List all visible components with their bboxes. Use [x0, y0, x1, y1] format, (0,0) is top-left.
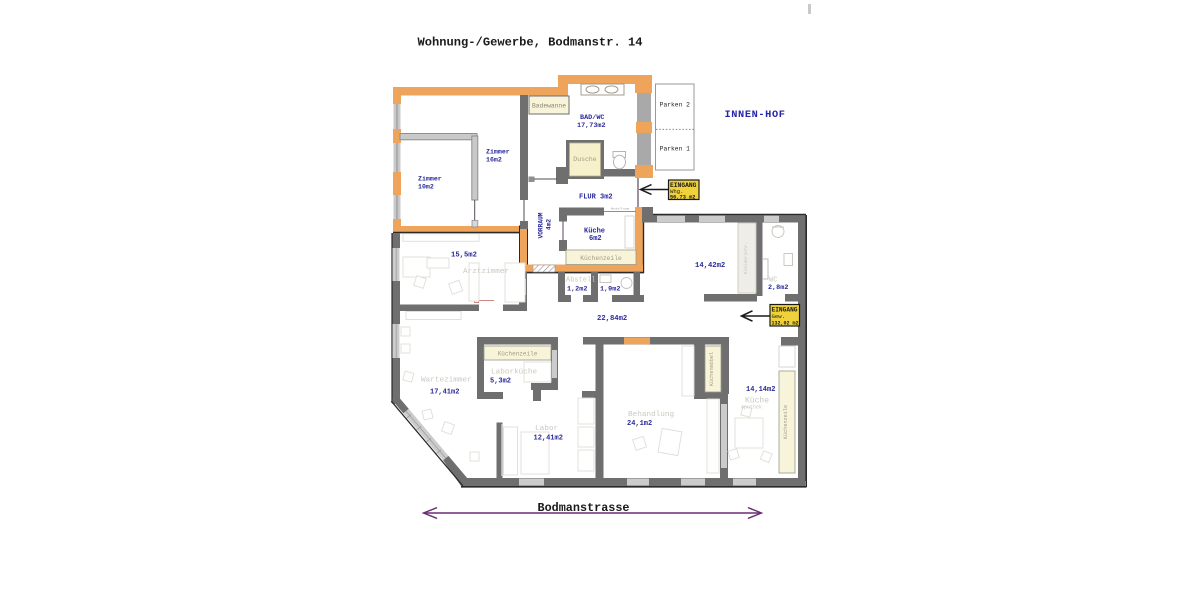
svg-text:22,84m2: 22,84m2	[597, 315, 627, 323]
svg-text:Abstellraum: Abstellraum	[611, 207, 630, 211]
svg-text:Zimmer: Zimmer	[418, 176, 442, 183]
svg-text:Badewanne: Badewanne	[532, 103, 566, 110]
svg-text:5,3m2: 5,3m2	[490, 378, 511, 386]
svg-text:Zimmer: Zimmer	[486, 149, 510, 156]
svg-text:6m2: 6m2	[589, 235, 602, 243]
svg-text:Gew.: Gew.	[772, 313, 785, 320]
svg-text:Kleiderschr.: Kleiderschr.	[743, 242, 749, 274]
svg-text:Wartezimmer: Wartezimmer	[421, 377, 472, 385]
svg-text:BAD/WC: BAD/WC	[580, 114, 604, 122]
svg-text:10m2: 10m2	[418, 184, 434, 191]
svg-text:14,42m2: 14,42m2	[695, 262, 725, 270]
svg-text:Apothek: Apothek	[741, 405, 762, 411]
svg-text:2,8m2: 2,8m2	[768, 284, 788, 292]
svg-text:Küchenzeile: Küchenzeile	[498, 351, 538, 358]
svg-text:Küchenzeile: Küchenzeile	[580, 255, 622, 262]
svg-text:Wohnung-/Gewerbe, Bodmanstr. 1: Wohnung-/Gewerbe, Bodmanstr. 14	[418, 36, 643, 50]
svg-text:Parken 1: Parken 1	[660, 146, 690, 153]
svg-text:56,73 m2: 56,73 m2	[670, 194, 695, 200]
svg-text:Behandlung: Behandlung	[628, 411, 674, 419]
svg-text:Labor: Labor	[535, 425, 558, 433]
svg-text:Parken 2: Parken 2	[660, 102, 690, 109]
svg-text:Küchenzeile: Küchenzeile	[783, 405, 789, 439]
svg-text:14,14m2: 14,14m2	[746, 386, 775, 394]
svg-text:12,41m2: 12,41m2	[534, 435, 563, 443]
svg-text:VORRAUM: VORRAUM	[538, 212, 545, 238]
svg-text:16m2: 16m2	[486, 157, 502, 164]
svg-text:24,1m2: 24,1m2	[627, 420, 652, 428]
svg-text:Laborküche: Laborküche	[491, 369, 538, 377]
svg-text:132,02 m2: 132,02 m2	[772, 320, 799, 326]
svg-text:1,9m2: 1,9m2	[600, 286, 620, 294]
svg-text:Dusche: Dusche	[573, 156, 597, 163]
svg-text:17,41m2: 17,41m2	[430, 389, 459, 397]
svg-text:15,5m2: 15,5m2	[451, 252, 477, 260]
svg-text:Arztzimmer: Arztzimmer	[463, 268, 509, 276]
svg-text:4m2: 4m2	[546, 219, 553, 230]
svg-text:Küchenmöbel: Küchenmöbel	[709, 352, 715, 386]
svg-text:FLUR 3m2: FLUR 3m2	[579, 194, 613, 202]
svg-text:Abstell: Abstell	[566, 277, 595, 285]
svg-text:INNEN-HOF: INNEN-HOF	[724, 109, 785, 121]
svg-text:17,73m2: 17,73m2	[577, 122, 606, 130]
svg-text:1,2m2: 1,2m2	[567, 286, 587, 294]
svg-text:WC: WC	[769, 277, 777, 285]
